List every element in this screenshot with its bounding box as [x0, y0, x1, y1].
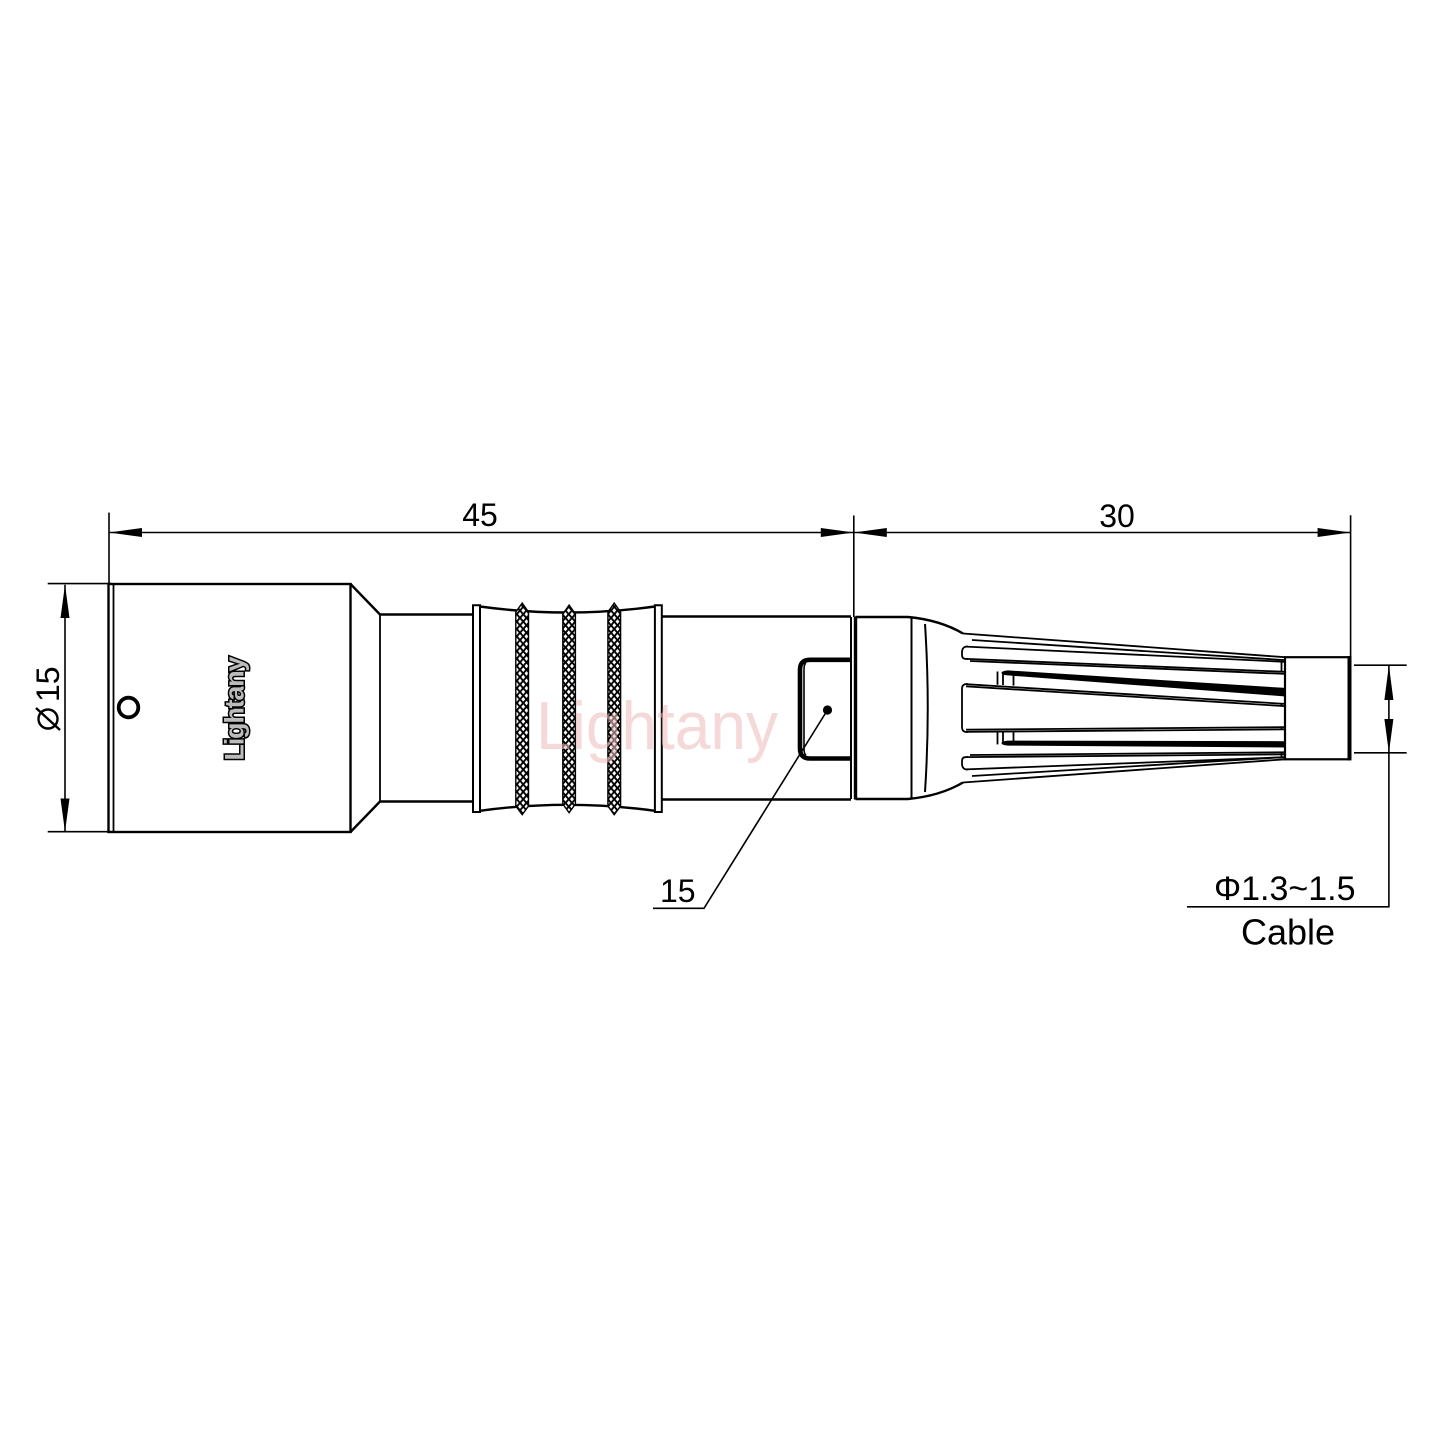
svg-text:15: 15 [660, 873, 696, 909]
svg-text:45: 45 [462, 497, 498, 533]
svg-text:30: 30 [1099, 498, 1135, 534]
svg-text:Cable: Cable [1241, 912, 1335, 953]
svg-text:Φ1.3~1.5: Φ1.3~1.5 [1214, 870, 1356, 908]
svg-text:Lightany: Lightany [220, 657, 250, 761]
svg-text:15: 15 [30, 666, 66, 702]
svg-text:Lightany: Lightany [536, 688, 778, 764]
